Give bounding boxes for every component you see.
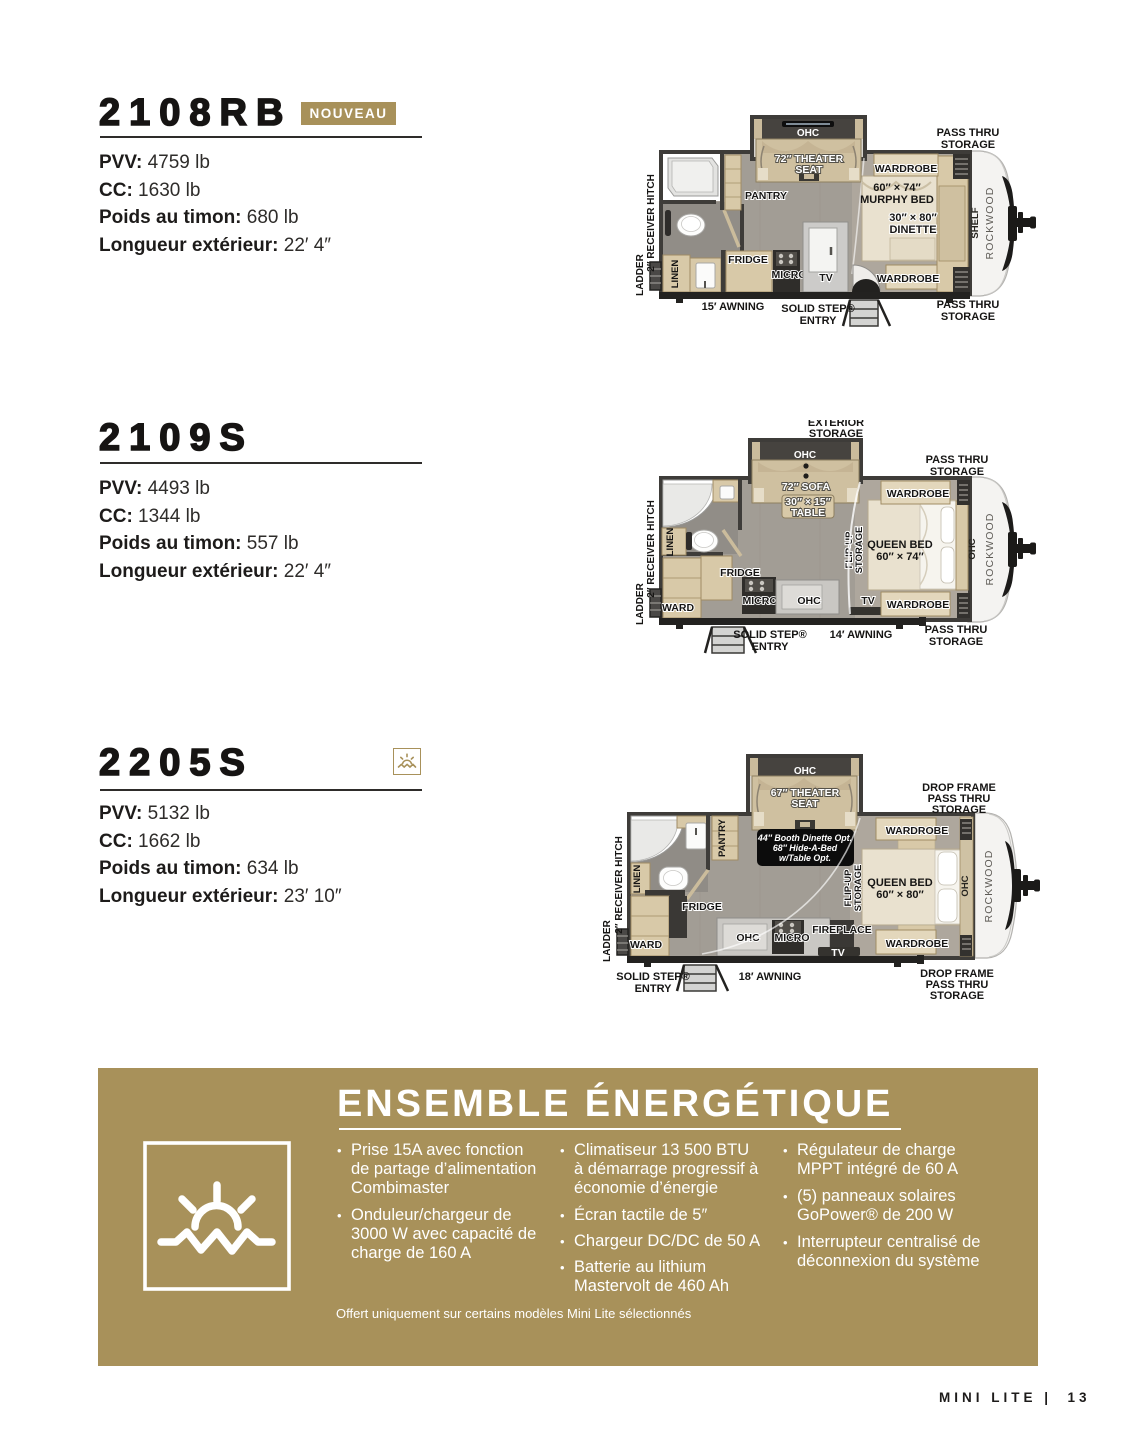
svg-text:60″ × 74″: 60″ × 74″ [873, 182, 921, 194]
svg-text:WARD: WARD [630, 939, 662, 951]
svg-text:WARD: WARD [662, 602, 694, 614]
svg-text:ROCKWOOD: ROCKWOOD [984, 513, 996, 586]
svg-text:STORAGE: STORAGE [809, 428, 863, 440]
svg-text:STORAGE: STORAGE [854, 527, 865, 574]
svg-text:SEAT: SEAT [795, 164, 823, 176]
svg-text:WARDROBE: WARDROBE [877, 273, 939, 285]
svg-text:FIREPLACE: FIREPLACE [812, 924, 872, 936]
svg-text:STORAGE: STORAGE [930, 466, 984, 478]
svg-text:SOLID STEP®: SOLID STEP® [733, 629, 807, 641]
svg-text:FRIDGE: FRIDGE [682, 901, 722, 913]
svg-text:WARDROBE: WARDROBE [886, 825, 948, 837]
svg-text:TABLE: TABLE [791, 507, 825, 519]
svg-text:SEAT: SEAT [791, 798, 819, 810]
svg-text:18′ AWNING: 18′ AWNING [739, 971, 802, 983]
svg-text:WARDROBE: WARDROBE [887, 488, 949, 500]
svg-text:SOLID STEP®: SOLID STEP® [616, 971, 690, 983]
svg-text:ENTRY: ENTRY [800, 315, 838, 327]
svg-text:ENTRY: ENTRY [635, 983, 673, 995]
svg-text:14′ AWNING: 14′ AWNING [830, 629, 893, 641]
svg-text:SHELF: SHELF [970, 207, 981, 238]
svg-text:DINETTE: DINETTE [889, 224, 936, 236]
svg-text:LINEN: LINEN [670, 260, 681, 289]
svg-text:LINEN: LINEN [665, 528, 676, 557]
svg-text:STORAGE: STORAGE [941, 139, 995, 151]
svg-text:15′ AWNING: 15′ AWNING [702, 301, 765, 313]
svg-text:68″ Hide-A-Bed: 68″ Hide-A-Bed [773, 843, 838, 853]
svg-text:STORAGE: STORAGE [929, 636, 983, 648]
svg-text:PANTRY: PANTRY [745, 190, 787, 202]
svg-text:OHC: OHC [736, 932, 760, 944]
svg-text:OHC: OHC [967, 538, 978, 559]
svg-text:PASS THRU: PASS THRU [937, 299, 1000, 311]
svg-text:WARDROBE: WARDROBE [886, 938, 948, 950]
svg-text:MICRO: MICRO [743, 595, 778, 607]
svg-text:QUEEN BED: QUEEN BED [867, 539, 932, 551]
svg-text:OHC: OHC [794, 450, 816, 461]
svg-text:PASS THRU: PASS THRU [925, 624, 988, 636]
svg-text:SOLID STEP®: SOLID STEP® [781, 303, 855, 315]
svg-text:STORAGE: STORAGE [932, 804, 986, 816]
svg-text:w/Table Opt.: w/Table Opt. [779, 853, 831, 863]
svg-text:PASS THRU: PASS THRU [926, 454, 989, 466]
svg-text:LADDER: LADDER [635, 253, 646, 295]
svg-text:LINEN: LINEN [632, 865, 643, 894]
svg-text:MICRO: MICRO [775, 932, 810, 944]
svg-text:PASS THRU: PASS THRU [937, 127, 1000, 139]
svg-text:WARDROBE: WARDROBE [887, 599, 949, 611]
svg-text:LADDER: LADDER [602, 919, 613, 961]
svg-text:MURPHY BED: MURPHY BED [860, 194, 934, 206]
svg-text:PANTRY: PANTRY [717, 818, 728, 857]
svg-text:STORAGE: STORAGE [941, 311, 995, 323]
svg-text:ROCKWOOD: ROCKWOOD [984, 187, 996, 260]
svg-text:OHC: OHC [797, 128, 819, 139]
svg-text:30″ × 80″: 30″ × 80″ [889, 212, 937, 224]
svg-text:2″ RECEIVER HITCH: 2″ RECEIVER HITCH [646, 500, 657, 598]
svg-text:TV: TV [819, 272, 832, 284]
svg-text:ROCKWOOD: ROCKWOOD [983, 850, 995, 923]
svg-text:60″ × 74″: 60″ × 74″ [876, 551, 924, 563]
svg-text:OHC: OHC [960, 875, 971, 896]
svg-text:WARDROBE: WARDROBE [875, 163, 937, 175]
svg-text:OHC: OHC [794, 766, 816, 777]
svg-text:MICRO: MICRO [772, 269, 807, 281]
svg-text:LADDER: LADDER [635, 582, 646, 624]
svg-text:60″ × 80″: 60″ × 80″ [876, 889, 924, 901]
svg-text:ENTRY: ENTRY [752, 641, 790, 653]
svg-text:QUEEN BED: QUEEN BED [867, 877, 932, 889]
svg-text:72″ SOFA: 72″ SOFA [782, 481, 831, 493]
svg-text:STORAGE: STORAGE [930, 990, 984, 1002]
svg-text:TV: TV [861, 595, 874, 607]
svg-text:2″ RECEIVER HITCH: 2″ RECEIVER HITCH [646, 174, 657, 272]
svg-text:2″ RECEIVER HITCH: 2″ RECEIVER HITCH [614, 836, 625, 934]
svg-text:44″ Booth Dinette Opt.: 44″ Booth Dinette Opt. [757, 833, 852, 843]
svg-text:OHC: OHC [797, 595, 821, 607]
svg-text:FRIDGE: FRIDGE [728, 254, 768, 266]
